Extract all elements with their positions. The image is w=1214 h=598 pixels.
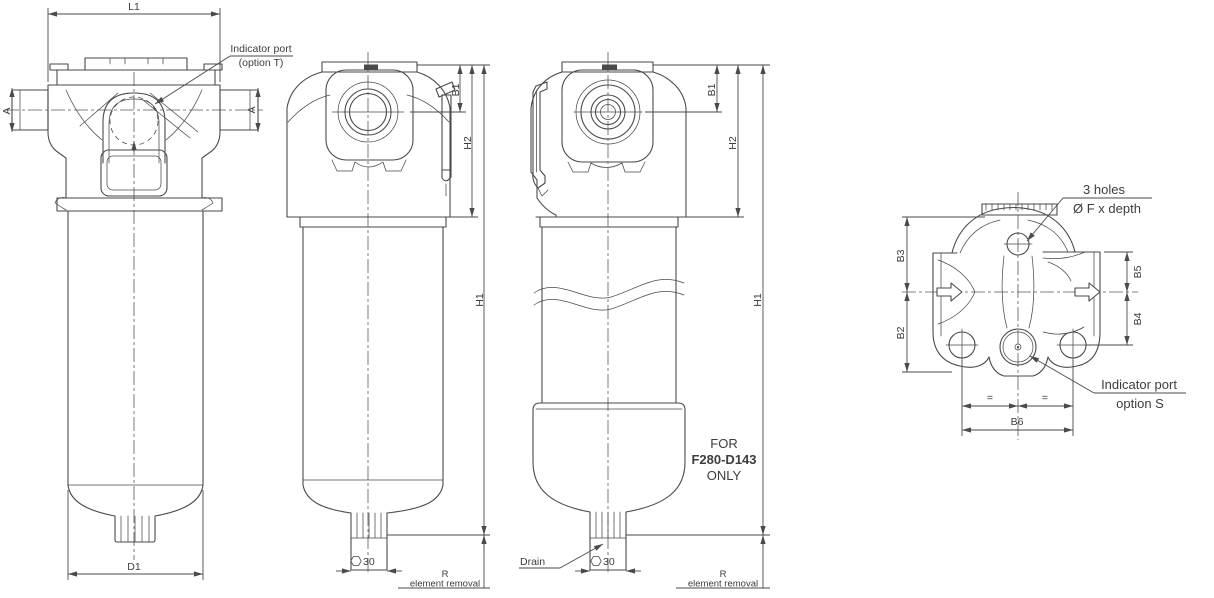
drain-label: Drain [520,556,545,568]
callout-leader [155,56,230,104]
section-letter-right: A [246,106,258,113]
bracket-outline [533,82,547,188]
b3-label: B3 [895,249,907,262]
removal-label-line2: element removal [688,579,758,590]
clamp-bracket [533,82,548,196]
body-and-bowl [533,217,685,570]
port-boss [562,70,653,162]
l1-label: L1 [128,1,140,13]
body-sides [542,227,676,403]
h2-label: H2 [727,136,739,150]
d1-label: D1 [127,561,141,573]
head-outline [531,72,686,217]
holes-and-ports [937,233,1100,365]
h2-label: H2 [462,136,474,150]
note-line1: FOR [710,436,737,451]
extension-lines [1086,252,1133,345]
cap-plug [364,65,378,71]
body-sides [303,227,443,485]
indicator-callout-line1: Indicator port [1101,377,1177,392]
removal-label-line2: element removal [410,579,480,590]
h1-label: H1 [474,293,486,307]
indicator-callout-line2: option S [1116,396,1164,411]
body-and-bowl [300,217,446,570]
section-view: L1 A A Indicator port (option T) D1 [1,1,293,580]
filter-housing-drawing: L1 A A Indicator port (option T) D1 [0,0,1214,598]
body-sides [68,211,203,485]
bowl-bottom-curve [68,485,203,516]
b2-label: B2 [895,326,907,339]
clamp-screw [436,82,455,196]
indicator-callout-line2: (option T) [239,57,284,69]
head [531,62,686,217]
b6-label: B6 [1011,416,1024,428]
indicator-callout-line1: Indicator port [230,43,291,55]
b4-label: B4 [1132,312,1144,325]
l1-extension-lines [48,8,220,82]
head [287,62,455,217]
bottom-outline [933,332,1100,376]
b1-label: B1 [450,83,462,96]
top-band [57,70,215,85]
section-letter-left: A [1,107,13,114]
bowl-bottom-curve [303,485,443,513]
wing-inner-lines [941,252,1094,336]
top-cap-ticks [110,58,163,64]
boss-feet [568,162,645,172]
h1-label: H1 [752,293,764,307]
holes-callout: 3 holes Ø F x depth [1027,182,1152,241]
head-casting-section [48,58,222,210]
dimensions-right: B1 H2 H1 R element removal [626,65,770,590]
side-view: Drain 30 FOR F280-D143 ONLY B1 H2 H1 R [519,52,770,590]
hex-size-label: 30 [603,556,615,568]
indicator-callout-t: Indicator port (option T) [155,43,293,104]
note-line2: F280-D143 [691,452,756,467]
shoulder-lines [288,95,449,122]
technical-drawing-page: L1 A A Indicator port (option T) D1 [0,0,1214,598]
equal-mark-left: = [987,392,993,404]
holes-callout-line1: 3 holes [1083,182,1125,197]
bowl-outline [533,403,685,512]
port-boss [326,70,413,160]
indicator-callout-leader [1030,356,1094,393]
equal-mark-right: = [1042,392,1048,404]
boss-feet [332,160,406,171]
bracket-details [537,92,549,196]
b5-label: B5 [1132,265,1144,278]
stub-splines [121,516,149,542]
break-wavy-lines [534,279,684,310]
collar [300,217,446,227]
top-tab-left [50,64,68,70]
dimensions-right: B5 B4 [1086,252,1144,345]
top-view: 3 holes Ø F x depth Indicator port optio… [895,182,1186,440]
model-note: FOR F280-D143 ONLY [691,436,756,483]
hex-icon [591,557,601,566]
hex-size-label: 30 [363,556,375,568]
drain-leader [560,544,603,568]
top-cap [85,58,187,70]
holes-callout-line2: Ø F x depth [1073,201,1141,216]
flow-arrow-outlet [1075,283,1100,301]
dome-inner-arcs [960,220,1068,253]
indicator-port-dot [1017,346,1019,348]
collar [57,198,222,211]
left-hole-crosshair [946,329,978,361]
cap-plug [602,65,617,71]
stub-splines [351,513,387,538]
note-line3: ONLY [707,468,742,483]
stub-splines [590,512,626,538]
dimension-D1: D1 [68,490,203,580]
b1-label: B1 [706,83,718,96]
indicator-callout-s: Indicator port option S [1030,356,1186,411]
body-and-bowl [57,198,222,542]
front-view: 30 B1 H2 H1 R element removal [287,52,490,590]
hex-size-callout: 30 [336,556,402,571]
collar [540,217,678,227]
hex-icon [351,557,361,566]
